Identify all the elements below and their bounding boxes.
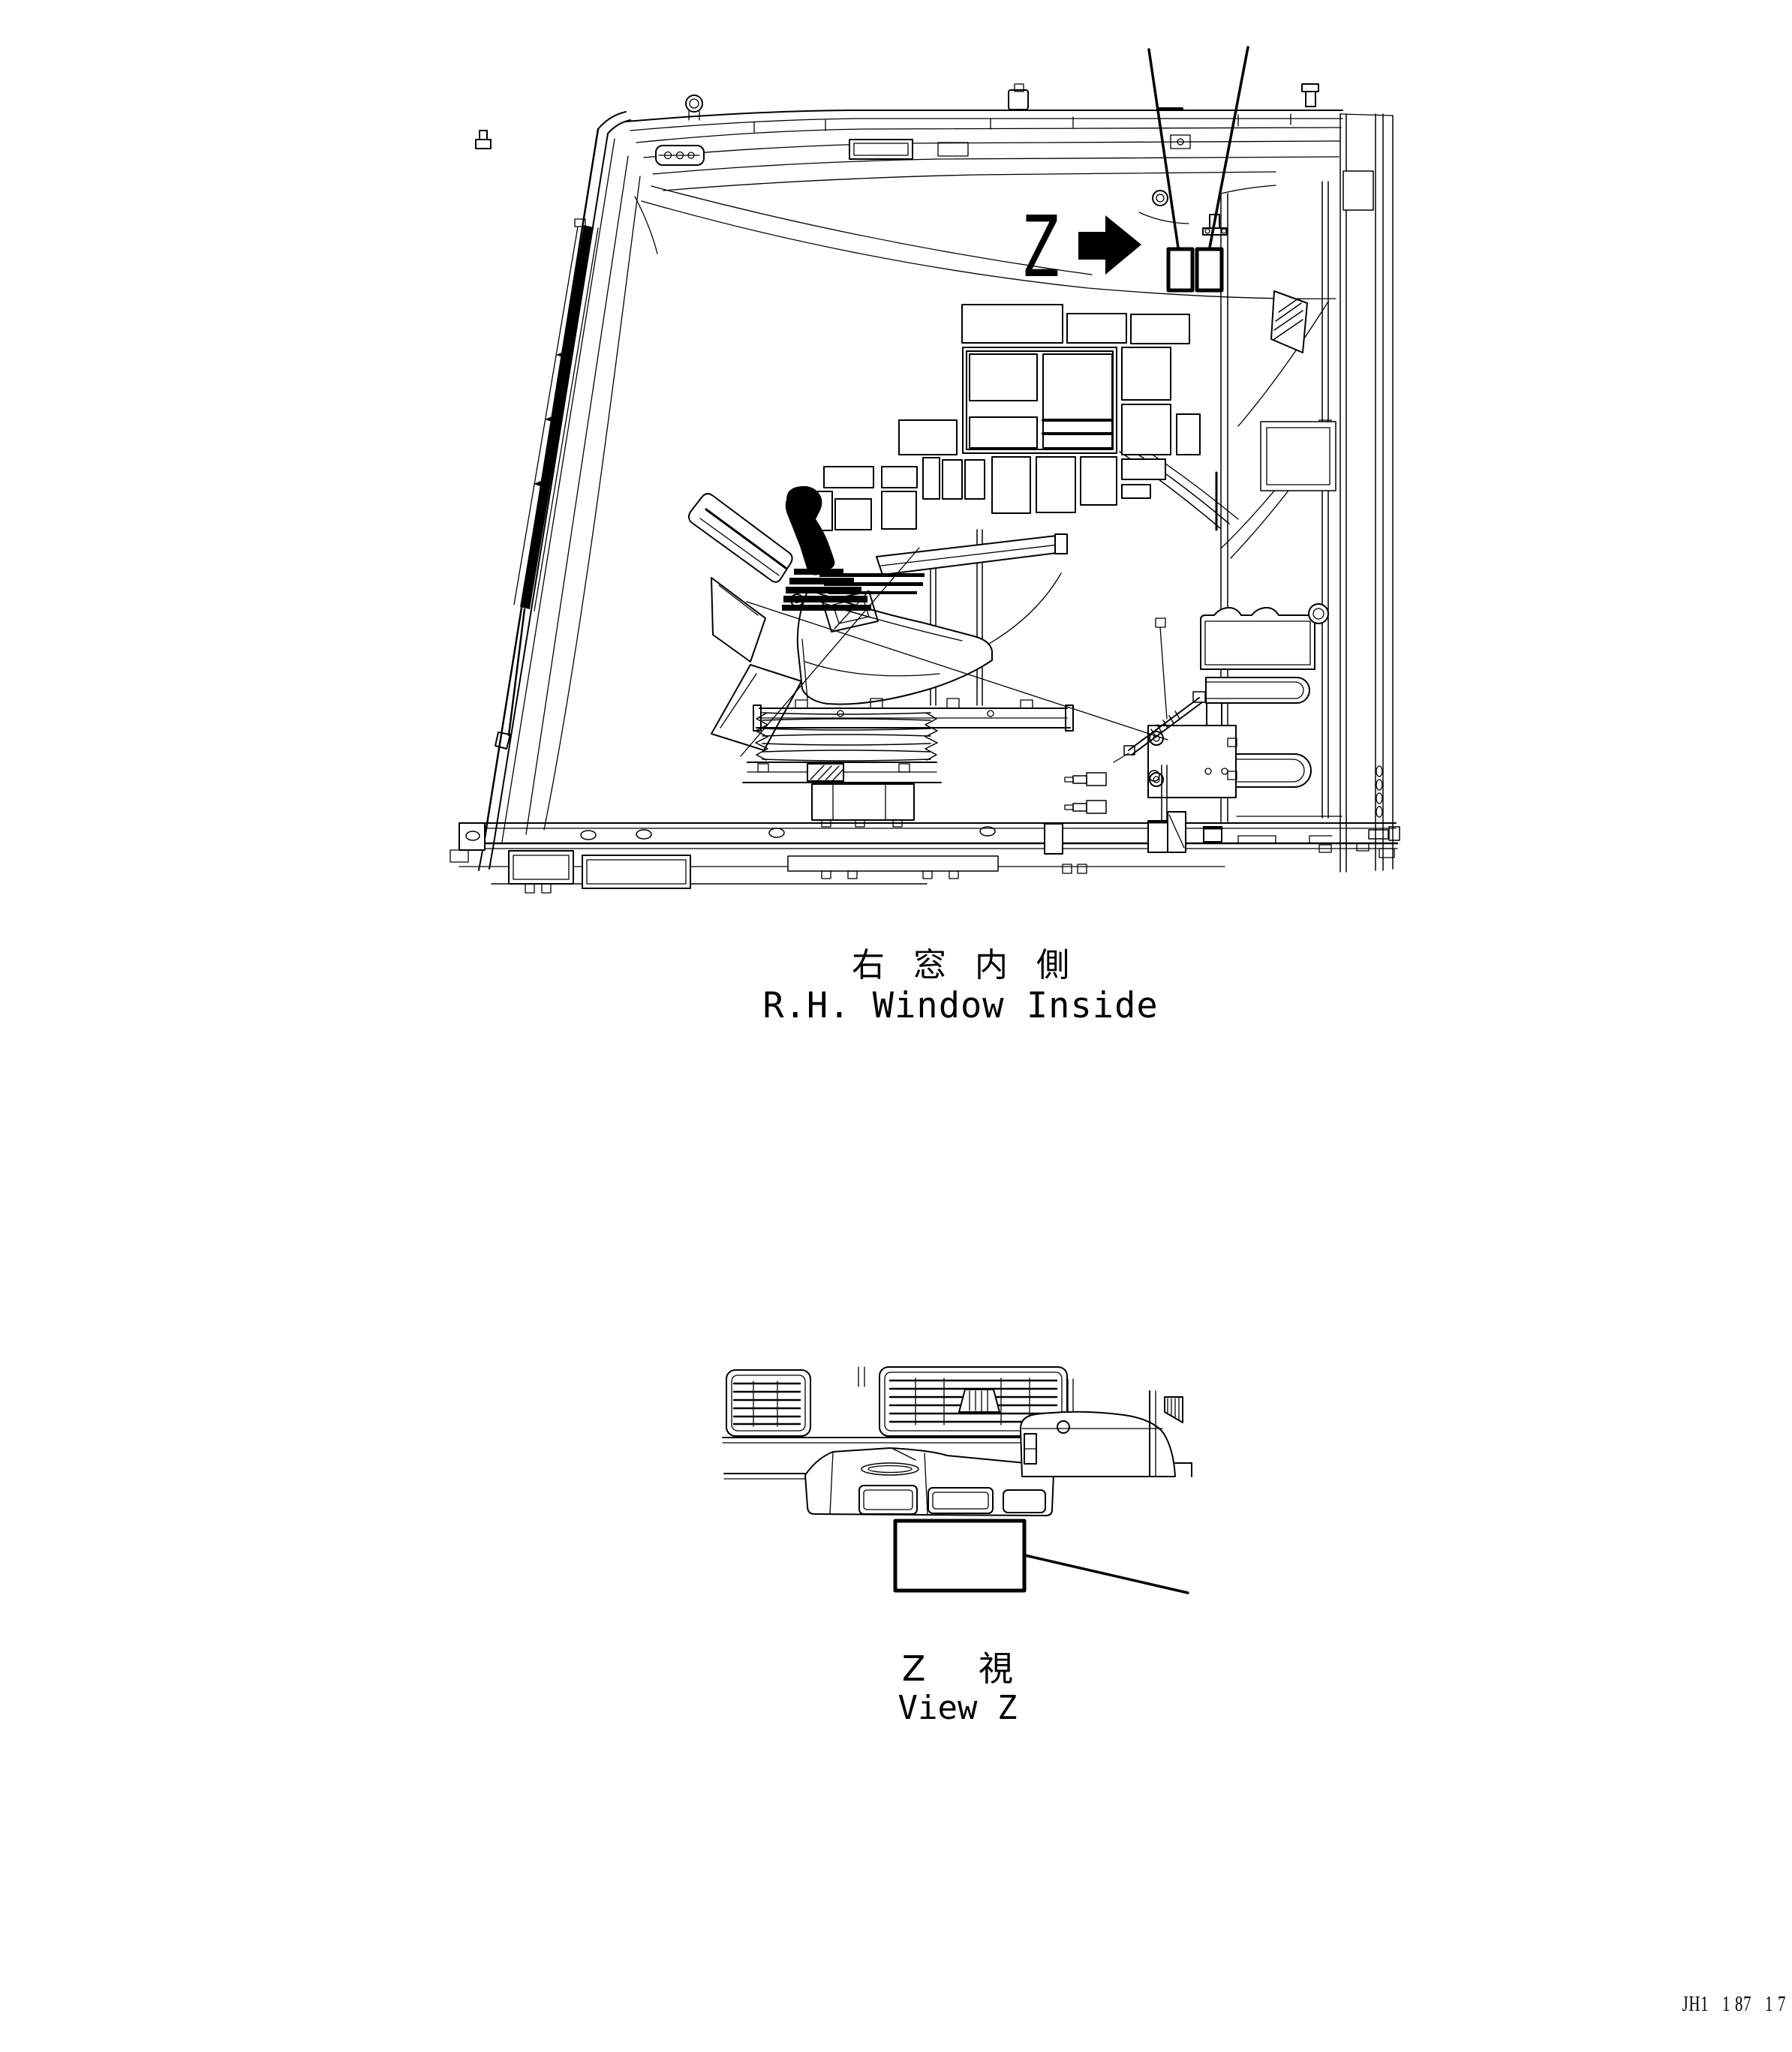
decal-leader-line	[1025, 1555, 1188, 1593]
main-drawing: Z	[450, 47, 1400, 893]
window-decal-layout	[813, 305, 1200, 530]
view-z-marker: Z	[1021, 47, 1248, 296]
decal-plate	[1168, 249, 1192, 290]
drawing-sheet: Z	[0, 0, 1792, 2052]
detail-view-caption-jp: Z 視	[770, 1649, 1145, 1689]
decal-leader-line	[1210, 47, 1248, 248]
seat-bellows	[756, 713, 937, 761]
right-arrow-icon	[1078, 215, 1141, 275]
duct-cover	[1021, 1412, 1192, 1477]
cab-a-pillar	[476, 112, 640, 870]
main-view-caption-jp: 右 窓 内 側	[758, 947, 1163, 985]
view-z-drawing	[723, 1367, 1192, 1593]
console	[805, 1448, 1054, 1516]
vent-louver-left	[726, 1370, 810, 1436]
sheet-code: JH1 1 87 1 7	[1682, 1993, 1786, 2017]
main-view-caption: 右 窓 内 側 R.H. Window Inside	[758, 947, 1163, 1027]
decal-plate-outline	[895, 1521, 1024, 1591]
main-view-caption-en: R.H. Window Inside	[758, 985, 1163, 1027]
detail-view-caption: Z 視 View Z	[770, 1649, 1145, 1729]
decal-plate	[1197, 249, 1222, 290]
cab-floor	[450, 823, 1397, 893]
vent-knob	[959, 1390, 1000, 1412]
view-marker-letter: Z	[1021, 199, 1060, 296]
detail-view-caption-en: View Z	[770, 1689, 1145, 1729]
operator-seat	[689, 494, 1228, 854]
wiper-blade	[495, 219, 598, 749]
